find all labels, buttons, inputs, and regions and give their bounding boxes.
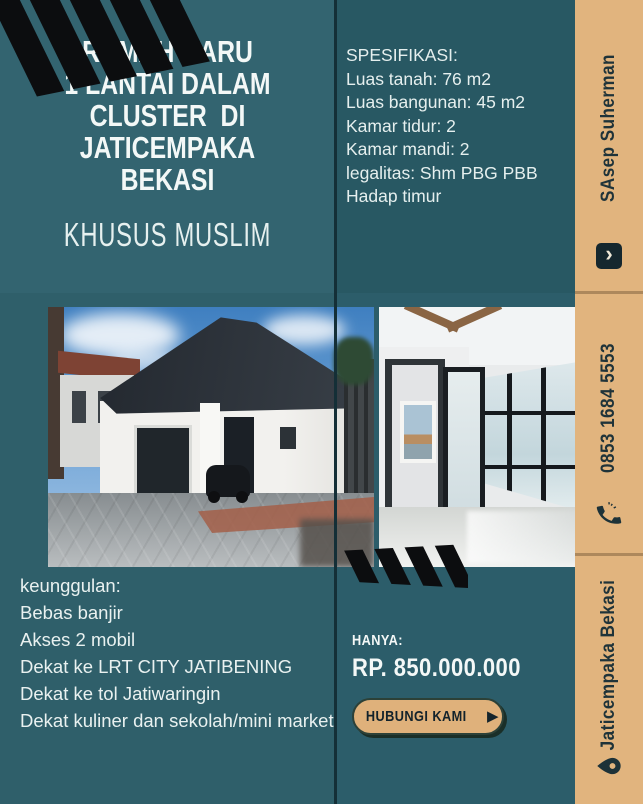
advantages-heading: keunggulan: bbox=[20, 572, 340, 599]
advantages-block: keunggulan: Bebas banjir Akses 2 mobil D… bbox=[20, 572, 340, 734]
specification-panel: SPESIFIKASI: Luas tanah: 76 m2 Luas bang… bbox=[337, 0, 575, 293]
photo-motorbike-wheel bbox=[236, 491, 248, 503]
sidebar-phone-section: 0853 1684 5553 bbox=[575, 291, 643, 553]
photo-house-interior bbox=[379, 307, 607, 567]
location-name: Jaticempaka Bekasi bbox=[598, 580, 620, 751]
headline-subtitle: KHUSUS MUSLIM bbox=[47, 218, 288, 252]
property-flyer: RUMAH BARU 1 LANTAI DALAM CLUSTER DI JAT… bbox=[0, 0, 643, 804]
contact-us-button[interactable]: HUBUNGI KAMI ▶ bbox=[352, 698, 504, 735]
play-arrow-icon: ▶ bbox=[487, 709, 499, 724]
headline-line: JATICEMPAKA bbox=[34, 132, 302, 164]
photo-house-window bbox=[134, 425, 192, 497]
advantage-item: Akses 2 mobil bbox=[20, 626, 340, 653]
contact-chevron-badge-icon: › bbox=[596, 243, 622, 269]
photo-inner-window bbox=[400, 401, 436, 463]
photo-neighbor-window bbox=[72, 391, 86, 423]
phone-number: 0853 1684 5553 bbox=[598, 343, 620, 473]
chevron-glyph: › bbox=[605, 243, 612, 265]
agent-name: SAsep Suherman bbox=[598, 54, 620, 202]
photo-motorbike-wheel bbox=[208, 491, 220, 503]
location-pin-icon bbox=[595, 752, 623, 780]
photo-floor-reflection bbox=[467, 511, 583, 563]
photo-house-exterior bbox=[48, 307, 374, 567]
advantage-item: Dekat ke tol Jatiwaringin bbox=[20, 680, 340, 707]
advantage-item: Bebas banjir bbox=[20, 599, 340, 626]
sidebar-location-section: Jaticempaka Bekasi bbox=[575, 553, 643, 804]
headline-line: BEKASI bbox=[34, 164, 302, 196]
spec-item: Luas tanah: 76 m2 bbox=[346, 68, 575, 92]
spec-item: Luas bangunan: 45 m2 bbox=[346, 91, 575, 115]
photo-house-small-window bbox=[280, 427, 296, 449]
price-value: RP. 850.000.000 bbox=[352, 654, 521, 683]
photo-glass-door bbox=[443, 367, 485, 527]
contact-sidebar: SAsep Suherman › 0853 1684 5553 Jaticemp… bbox=[575, 0, 643, 804]
photo-foliage bbox=[334, 337, 374, 385]
spec-item: legalitas: Shm PBG PBB bbox=[346, 162, 575, 186]
contact-us-label: HUBUNGI KAMI bbox=[366, 708, 467, 725]
price-label: HANYA: bbox=[352, 632, 515, 649]
headline-line: CLUSTER DI bbox=[34, 100, 302, 132]
spec-item: Hadap timur bbox=[346, 185, 575, 209]
spec-item: Kamar mandi: 2 bbox=[346, 138, 575, 162]
decor-stripes-offer bbox=[336, 544, 468, 588]
spec-heading: SPESIFIKASI: bbox=[346, 44, 575, 68]
spec-item: Kamar tidur: 2 bbox=[346, 115, 575, 139]
offer-block: HANYA: RP. 850.000.000 HUBUNGI KAMI ▶ bbox=[352, 632, 544, 735]
advantage-item: Dekat kuliner dan sekolah/mini market bbox=[20, 707, 340, 734]
phone-icon bbox=[592, 498, 625, 531]
advantage-item: Dekat ke LRT CITY JATIBENING bbox=[20, 653, 340, 680]
sidebar-agent-section: SAsep Suherman › bbox=[575, 0, 643, 291]
